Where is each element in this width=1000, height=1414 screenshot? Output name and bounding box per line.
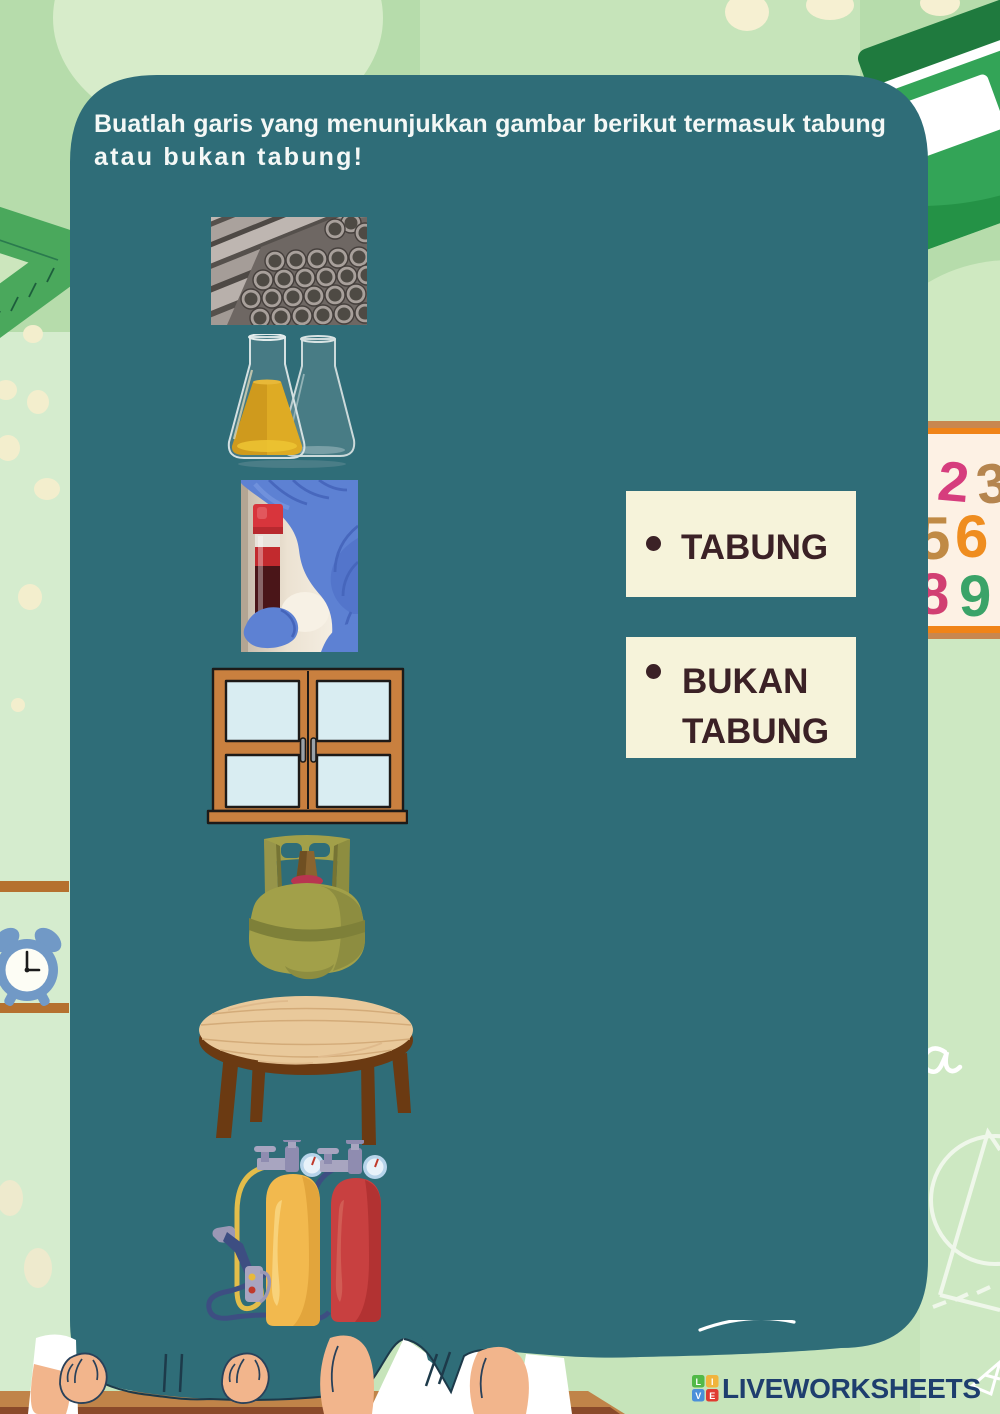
svg-text:I: I [711, 1377, 714, 1387]
svg-text:E: E [709, 1391, 715, 1401]
svg-text:V: V [695, 1391, 701, 1401]
svg-text:L: L [695, 1377, 701, 1387]
